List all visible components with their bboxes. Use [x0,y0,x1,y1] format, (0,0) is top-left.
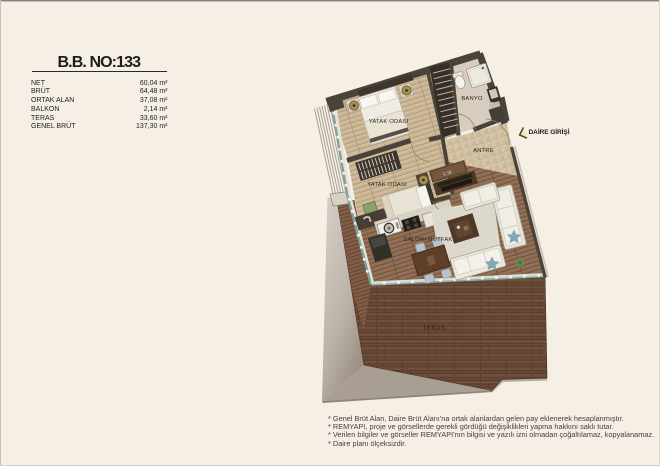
svg-text:TERAS: TERAS [423,325,446,332]
svg-text:YATAK ODASI: YATAK ODASI [367,182,407,188]
svg-text:DAİRE GİRİŞİ: DAİRE GİRİŞİ [529,128,570,136]
svg-text:ANTRE: ANTRE [473,148,494,154]
svg-text:SALON+MUTFAK: SALON+MUTFAK [404,237,453,243]
svg-text:YATAK ODASI: YATAK ODASI [369,119,409,125]
svg-text:BANYO: BANYO [461,96,483,102]
